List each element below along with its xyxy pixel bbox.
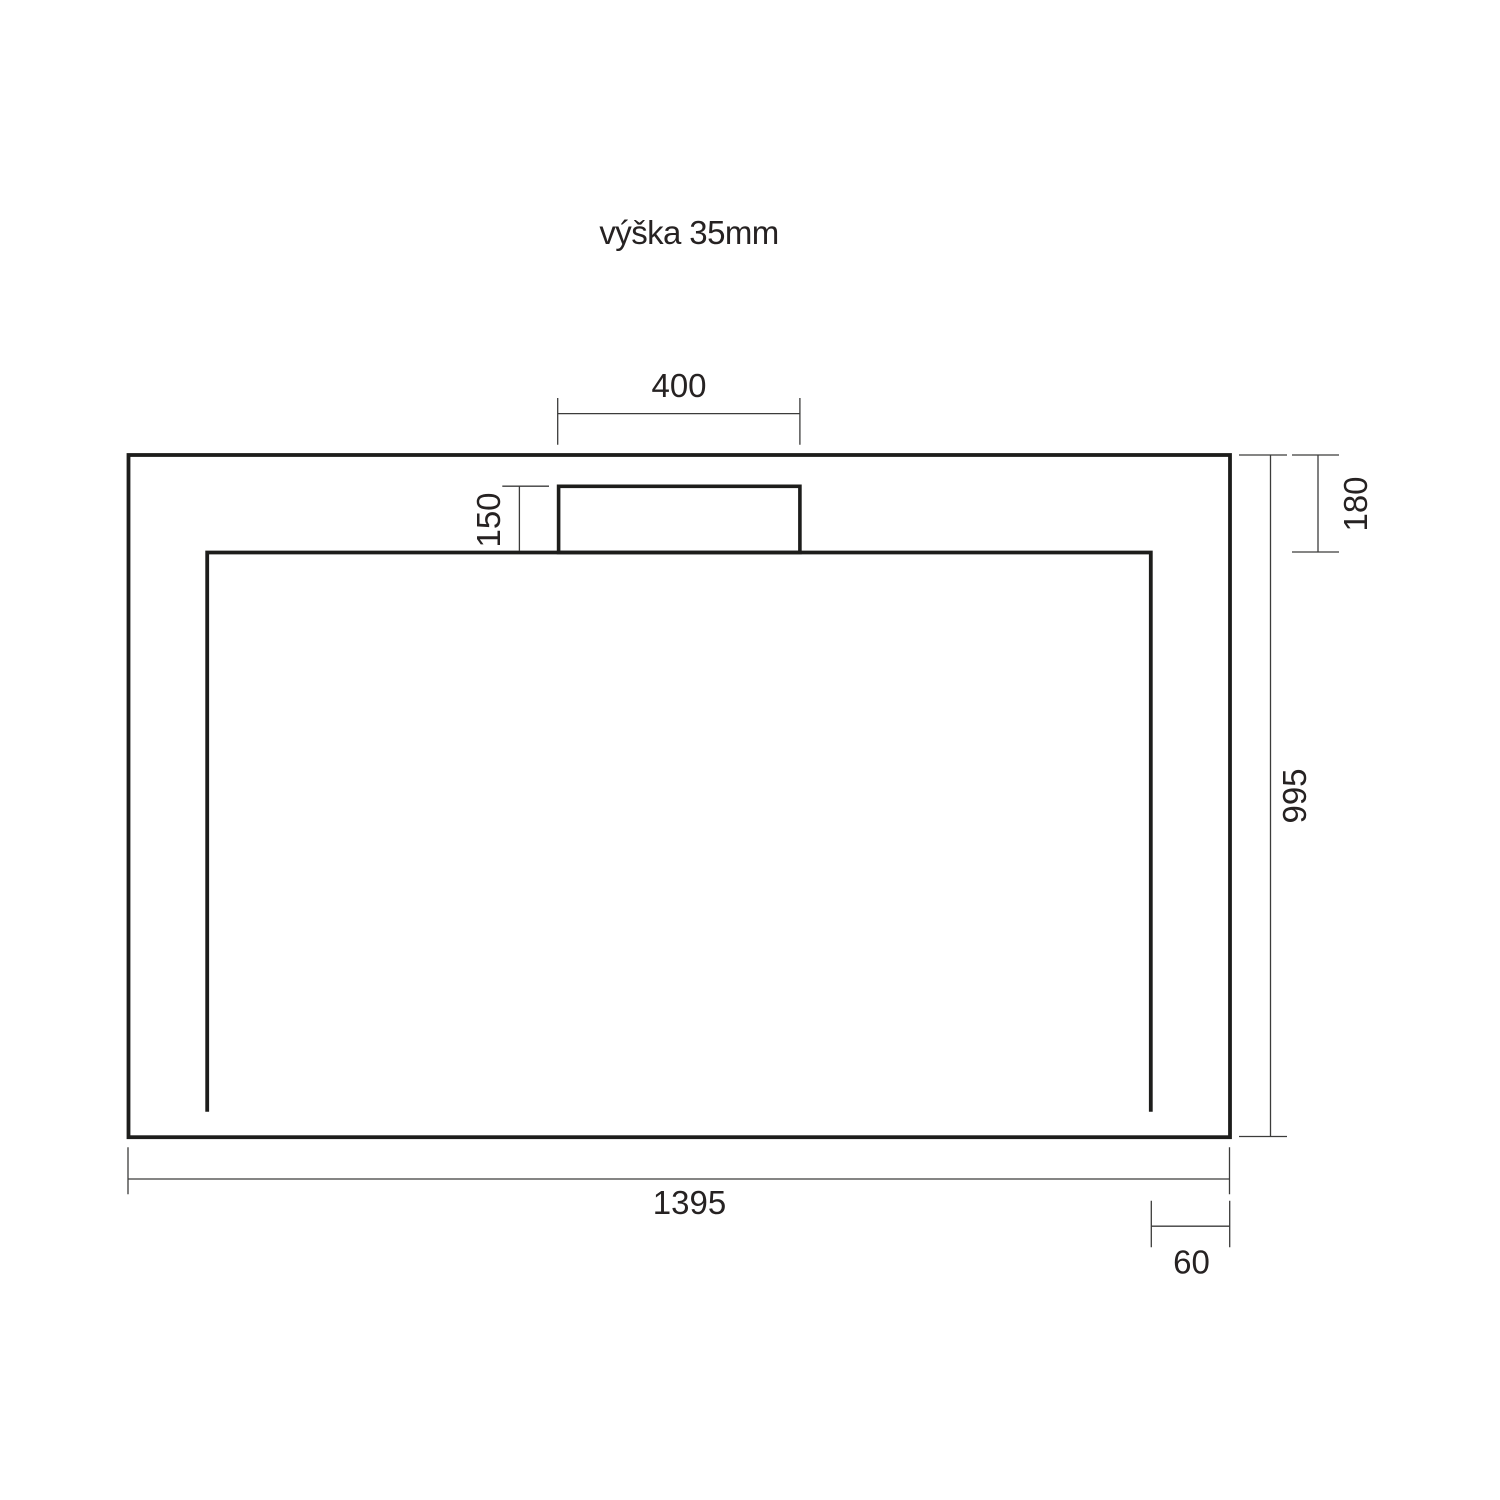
- svg-text:150: 150: [470, 492, 507, 547]
- svg-text:995: 995: [1276, 768, 1313, 823]
- svg-text:180: 180: [1337, 476, 1374, 531]
- svg-text:60: 60: [1173, 1244, 1210, 1281]
- svg-text:1395: 1395: [653, 1184, 726, 1221]
- svg-text:400: 400: [651, 367, 706, 404]
- svg-text:výška 35mm: výška 35mm: [599, 214, 778, 251]
